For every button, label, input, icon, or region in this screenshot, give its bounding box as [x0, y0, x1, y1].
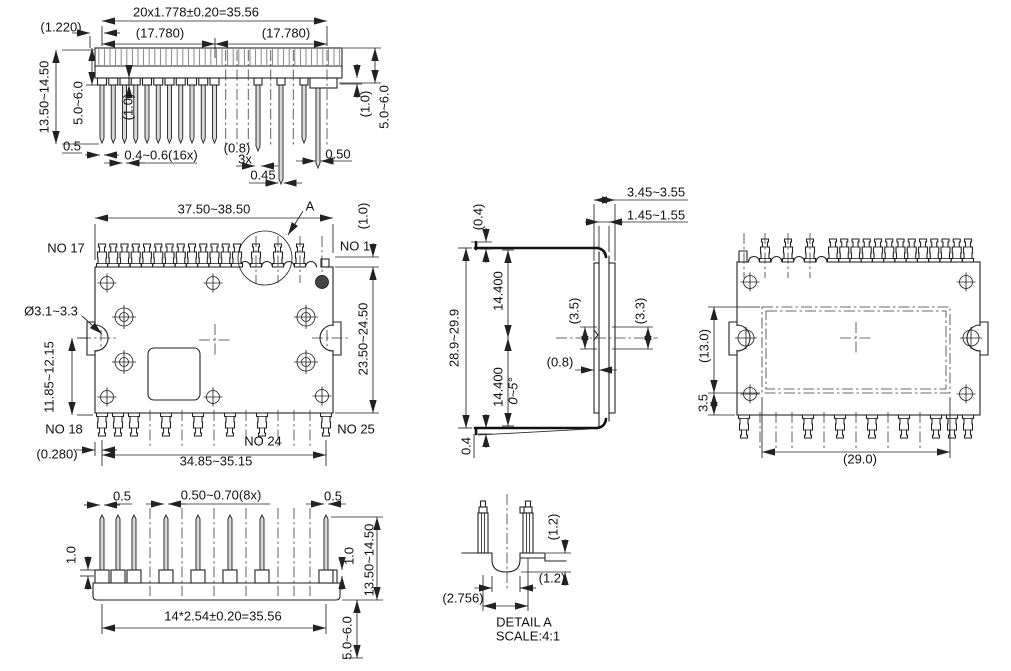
dim-half-span-bottom: 14.400 [490, 367, 505, 407]
view-bottom-pin-row: 0.5 0.50~0.70(8x) 0.5 1.0 1.0 13.50~14.5… [63, 487, 383, 659]
label-pin-no17: NO 17 [47, 240, 85, 255]
dim-body-height: 23.50~24.50 [355, 303, 370, 376]
base-bar [93, 583, 340, 600]
dim-3-3: (3.3) [632, 298, 647, 325]
dim-3-5: (3.5) [566, 298, 581, 325]
module-body-back [737, 262, 980, 415]
drawing-canvas: 20x1.778±0.20=35.56 (1.220) (17.780) (17… [0, 0, 1011, 671]
dim-edge-pin-width: 0.5 [63, 138, 81, 153]
dim-pitch-total-b: 14*2.54±0.20=35.56 [164, 608, 281, 623]
label-detail-marker: A [306, 198, 315, 213]
dim-shoulder-right: 5.0~6.0 [376, 85, 391, 129]
dim-tip-top: (0.4) [470, 204, 485, 231]
dim-pin-span: 34.85~35.15 [180, 453, 253, 468]
dim-pin-length-top: 13.50~14.50 [36, 61, 51, 134]
body-profile [594, 252, 615, 427]
dim-pin-width-045: 0.45 [250, 167, 275, 182]
dim-edge-pin-width-left-b: 0.5 [113, 488, 131, 503]
detail-pin-1 [478, 501, 488, 553]
dim-edge-pin-width-right: 0.50 [325, 146, 350, 161]
dim-lead-offset: (1.220) [40, 19, 81, 34]
label-pin-no24: NO 24 [244, 433, 282, 448]
dim-body-thickness: 1.45~1.55 [627, 207, 685, 222]
dim-pad-height: (13.0) [696, 329, 711, 363]
dim-edge-pin-width-right-b: 0.5 [324, 488, 342, 503]
dim-standoff-b: 5.0~6.0 [339, 616, 354, 660]
dim-hole-diameter: Ø3.1~3.3 [24, 303, 78, 318]
detail-body-edge [462, 553, 566, 572]
dim-body-width: 37.50~38.50 [178, 201, 251, 216]
dim-half-left: (17.780) [136, 25, 184, 40]
dim-pin-offset: (1.0) [355, 203, 370, 230]
dim-collar-right-b: 1.0 [341, 547, 356, 565]
view-detail-a: (1.2) (1.2) (2.756) DETAIL A SCALE:4:1 [442, 494, 571, 643]
dim-narrow-pin-width: 0.4~0.6(16x) [124, 147, 197, 162]
dim-notch-width: (1.2) [539, 570, 566, 585]
dim-pitch-total-top: 20x1.778±0.20=35.56 [133, 4, 259, 19]
detail-scale: SCALE:4:1 [496, 628, 560, 643]
dim-pad-width: (29.0) [843, 451, 877, 466]
view-front: 37.50~38.50 A (1.0) NO 17 NO 1 Ø3.1~3.3 … [24, 198, 379, 468]
detail-title: DETAIL A [496, 614, 552, 629]
label-pin-no18: NO 18 [45, 421, 83, 436]
pin-header-texture [96, 49, 341, 65]
dim-edge-offset: (0.280) [36, 446, 77, 461]
corner-pin-block [310, 78, 337, 88]
dim-half-right: (17.780) [262, 25, 310, 40]
edge-step [594, 330, 598, 340]
dim-collar-left: (1.0) [120, 94, 135, 121]
label-pin-no25: NO 25 [337, 421, 375, 436]
dim-lead-angle: 0~5° [505, 377, 520, 404]
corner-pin-stub-back [739, 251, 747, 262]
label-pin-no1: NO 1 [340, 238, 370, 253]
detail-a-leader [288, 211, 303, 235]
dim-pin-width-b: 0.50~0.70(8x) [181, 487, 262, 502]
dim-lead-span: 28.9~29.9 [446, 309, 461, 367]
dim-pin-pitch-detail: (2.756) [442, 590, 483, 605]
dim-shoulder-left: 5.0~6.0 [70, 81, 85, 125]
dim-hole-position: 11.85~12.15 [41, 341, 56, 413]
view-side: 3.45~3.55 1.45~1.55 (0.4) 28.9~29.9 14.4… [446, 184, 688, 458]
hole-filled [316, 276, 329, 289]
top-pins-back [760, 239, 974, 262]
view-back: (13.0) 3.5 (29.0) [695, 233, 988, 466]
dim-collar-left-b: 1.0 [63, 546, 78, 564]
view-top-pin-row: 20x1.778±0.20=35.56 (1.220) (17.780) (17… [36, 4, 391, 184]
dim-0-8: (0.8) [547, 354, 574, 369]
mechanical-drawing-sheet: 20x1.778±0.20=35.56 (1.220) (17.780) (17… [0, 0, 1011, 671]
dim-pad-offset: 3.5 [695, 394, 710, 412]
dim-tip-bottom: 0.4 [458, 437, 473, 455]
detail-pin-2 [520, 501, 533, 553]
dim-notch-depth: (1.2) [545, 514, 560, 541]
top-pins-group [97, 244, 330, 267]
dim-total-thickness: 3.45~3.55 [627, 184, 685, 199]
dimensions-side-view [458, 200, 688, 458]
dim-pin-length-b: 13.50~14.50 [361, 524, 376, 597]
dim-collar-right: (1.0) [357, 91, 372, 118]
dim-wide-pin-count: 3x [238, 151, 252, 166]
dim-half-span-top: 14.400 [490, 271, 505, 311]
